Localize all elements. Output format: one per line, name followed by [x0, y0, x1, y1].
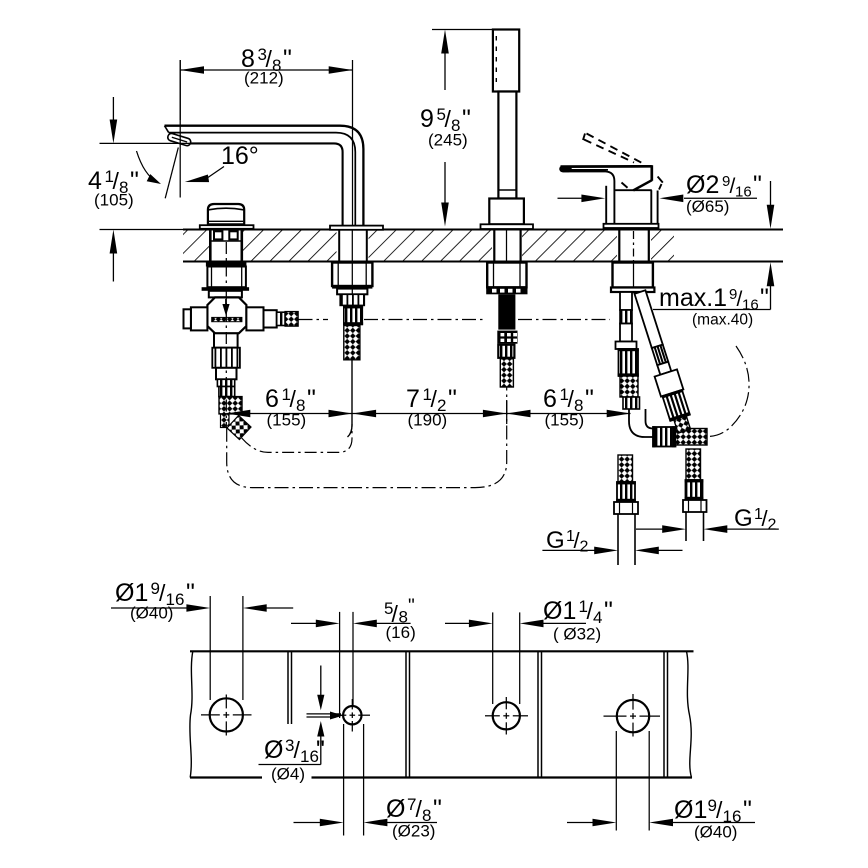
svg-text:( Ø32): ( Ø32) — [553, 625, 601, 644]
svg-text:": " — [316, 736, 325, 764]
svg-text:2: 2 — [580, 539, 589, 556]
svg-text:16°: 16° — [221, 142, 259, 170]
svg-text:(Ø40): (Ø40) — [130, 604, 173, 623]
svg-text:(Ø23): (Ø23) — [392, 822, 435, 841]
svg-text:(105): (105) — [94, 191, 134, 210]
svg-text:(190): (190) — [408, 411, 448, 430]
svg-text:": " — [743, 796, 752, 824]
svg-text:Ø1: Ø1 — [543, 597, 576, 625]
svg-text:": " — [760, 284, 769, 312]
svg-text:(155): (155) — [267, 411, 307, 430]
svg-text:(max.40): (max.40) — [692, 312, 753, 329]
svg-text:9: 9 — [420, 105, 434, 133]
svg-text:": " — [307, 385, 316, 413]
svg-text:max.1: max.1 — [659, 284, 727, 312]
svg-text:6: 6 — [543, 385, 557, 413]
svg-text:7: 7 — [406, 385, 420, 413]
svg-text:": " — [448, 385, 457, 413]
svg-text:": " — [604, 597, 613, 625]
svg-text:": " — [585, 385, 594, 413]
svg-text:(212): (212) — [244, 69, 284, 88]
svg-text:Ø1: Ø1 — [674, 796, 707, 824]
svg-text:(Ø4): (Ø4) — [271, 765, 305, 784]
svg-text:(245): (245) — [428, 131, 468, 150]
svg-text:": " — [408, 596, 415, 617]
svg-text:G: G — [734, 505, 753, 532]
svg-text:": " — [433, 795, 442, 823]
svg-text:6: 6 — [265, 385, 279, 413]
svg-text:2: 2 — [768, 517, 777, 534]
svg-text:(Ø65): (Ø65) — [686, 197, 729, 216]
svg-text:(16): (16) — [386, 623, 416, 642]
svg-text:Ø: Ø — [386, 795, 405, 823]
svg-text:": " — [283, 45, 292, 73]
svg-text:": " — [462, 105, 471, 133]
svg-text:Ø2: Ø2 — [686, 171, 719, 199]
svg-text:(Ø40): (Ø40) — [694, 823, 737, 842]
svg-text:": " — [753, 171, 762, 199]
svg-text:(155): (155) — [545, 411, 585, 430]
svg-text:": " — [186, 579, 195, 607]
svg-text:16: 16 — [735, 184, 752, 201]
svg-text:Ø: Ø — [264, 736, 283, 764]
